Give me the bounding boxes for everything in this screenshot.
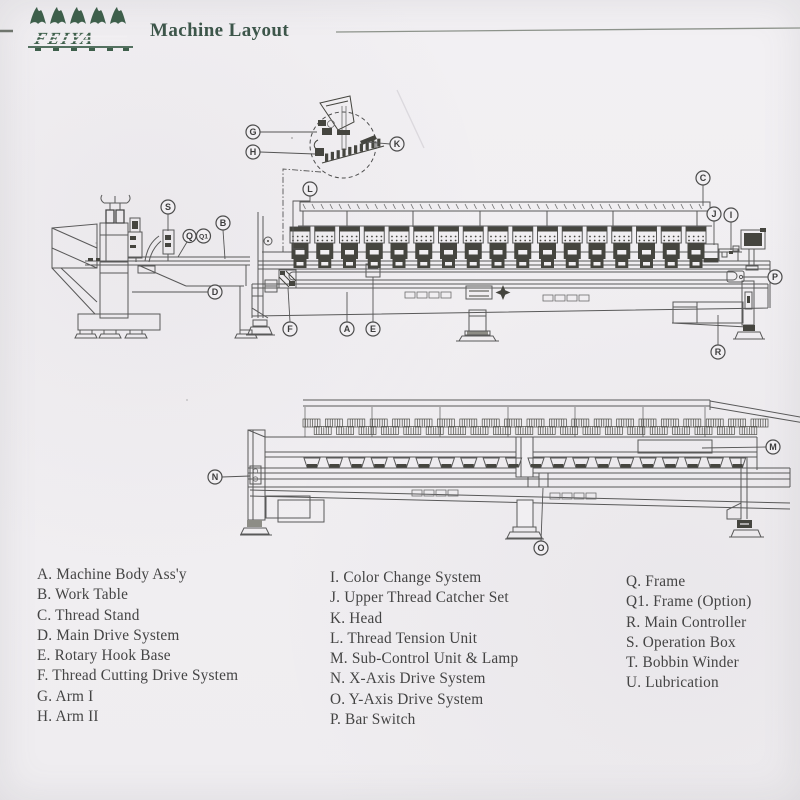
legend-item: P. Bar Switch [330,710,518,730]
callout-letter: Q [186,231,193,241]
callout-letter: G [249,127,256,137]
legend-item: M. Sub-Control Unit & Lamp [330,649,518,669]
header-rule [0,28,800,32]
machine-line-art [52,96,800,539]
logo-crown-icon [30,7,126,24]
legend-item: T. Bobbin Winder [626,653,752,673]
brand-logo-text: FEIYA [32,29,97,48]
callout-Q: Q [178,230,196,258]
callout-letter: M [769,442,777,452]
callout-I: I [724,208,738,250]
callout-letter: L [307,184,313,194]
callout-letter: J [711,209,716,219]
legend-item: E. Rotary Hook Base [37,646,238,666]
legend-column-3: Q. FrameQ1. Frame (Option)R. Main Contro… [626,572,752,694]
machine-repeated-parts [290,204,768,468]
callout-letter: D [212,287,219,297]
legend-item: Q. Frame [626,572,752,592]
callout-D: D [132,285,222,299]
legend-item: J. Upper Thread Catcher Set [330,588,518,608]
callout-letter: P [772,272,778,282]
callout-E: E [366,277,380,336]
logo-feet [35,48,129,51]
legend-item: H. Arm II [37,707,238,727]
legend-item: A. Machine Body Ass'y [37,565,238,585]
legend-item: C. Thread Stand [37,606,238,626]
callout-letter: R [715,347,722,357]
legend-item: N. X-Axis Drive System [330,669,518,689]
scanned-manual-page: FEIYA GHKLCJIPSQQ1BDFAERNMO Machine Layo… [0,0,800,800]
callout-H: H [246,145,315,159]
legend-item: G. Arm I [37,687,238,707]
legend-item: F. Thread Cutting Drive System [37,666,238,686]
legend-column-2: I. Color Change SystemJ. Upper Thread Ca… [330,568,518,730]
callout-letter: F [287,324,293,334]
legend-item: I. Color Change System [330,568,518,588]
legend-item: S. Operation Box [626,633,752,653]
callout-P: P [742,270,782,284]
callout-N: N [208,470,250,484]
legend-item: L. Thread Tension Unit [330,629,518,649]
callout-Q1: Q1 [197,229,211,243]
callout-letter: E [370,324,376,334]
legend-item: B. Work Table [37,585,238,605]
legend-item: Q1. Frame (Option) [626,592,752,612]
legend-item: U. Lubrication [626,673,752,693]
callout-letter: H [250,147,257,157]
legend-item: D. Main Drive System [37,626,238,646]
legend-item: K. Head [330,609,518,629]
callout-S: S [161,200,175,231]
callout-letter: B [220,218,227,228]
diagram-callouts: GHKLCJIPSQQ1BDFAERNMO [132,125,782,555]
callout-letter: Q1 [199,233,208,240]
legend-item: R. Main Controller [626,613,752,633]
callout-letter: S [165,202,171,212]
callout-R: R [711,315,725,359]
callout-letter: C [700,173,707,183]
legend-item: O. Y-Axis Drive System [330,690,518,710]
callout-B: B [216,216,230,259]
callout-O: O [534,488,548,555]
callout-letter: O [537,543,544,553]
callout-L: L [293,182,317,249]
callout-letter: A [344,324,351,334]
callout-letter: N [212,472,219,482]
callout-C: C [696,171,710,206]
callout-letter: K [394,139,401,149]
callout-G: G [246,125,317,139]
feiya-logo: FEIYA [28,7,133,51]
page-title: Machine Layout [150,20,289,42]
callout-letter: I [730,210,733,220]
legend-column-1: A. Machine Body Ass'yB. Work TableC. Thr… [37,565,238,727]
callout-F: F [283,288,297,336]
